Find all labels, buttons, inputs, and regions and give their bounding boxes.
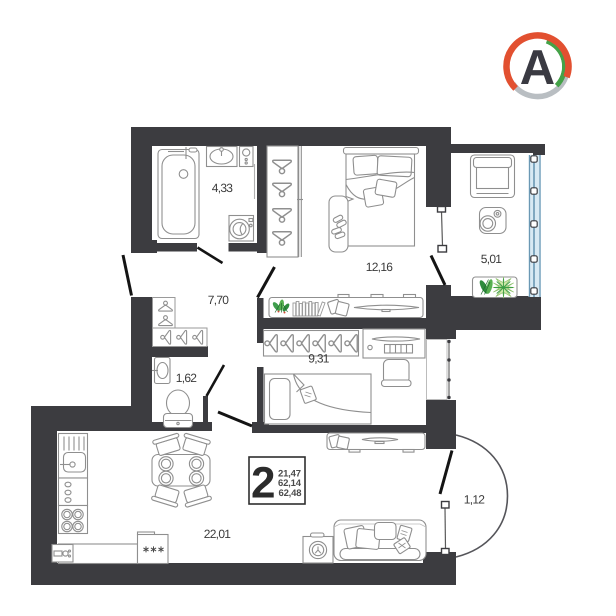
svg-text:A: A (520, 41, 555, 95)
svg-text:62,48: 62,48 (279, 488, 302, 499)
svg-text:4,33: 4,33 (212, 181, 234, 195)
svg-text:7,70: 7,70 (208, 293, 230, 307)
svg-text:1,12: 1,12 (464, 493, 486, 507)
svg-text:1,62: 1,62 (176, 371, 198, 385)
svg-text:9,31: 9,31 (308, 352, 330, 366)
svg-text:2: 2 (251, 459, 275, 508)
svg-text:22,01: 22,01 (204, 527, 232, 541)
svg-text:5,01: 5,01 (481, 252, 503, 266)
svg-text:12,16: 12,16 (366, 260, 394, 274)
